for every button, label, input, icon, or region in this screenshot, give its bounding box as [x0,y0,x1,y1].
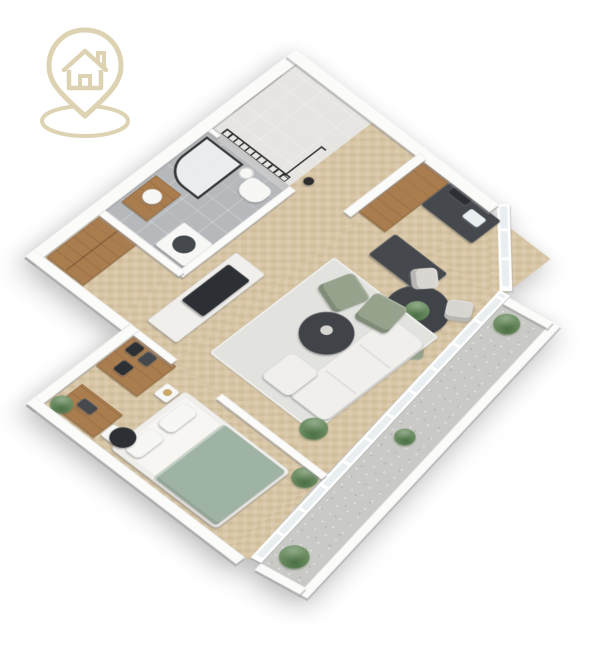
dining-chair-2 [443,299,474,323]
dining-chair-1 [410,267,439,289]
balcony-plant-2 [390,425,420,448]
page-background: { "title": "3D isometric apartment floor… [0,0,600,650]
logo-pin-outline [49,30,121,116]
house-pin-logo-icon [28,22,143,140]
dining-window-wall [497,204,512,291]
balcony-plant-3 [273,540,316,573]
